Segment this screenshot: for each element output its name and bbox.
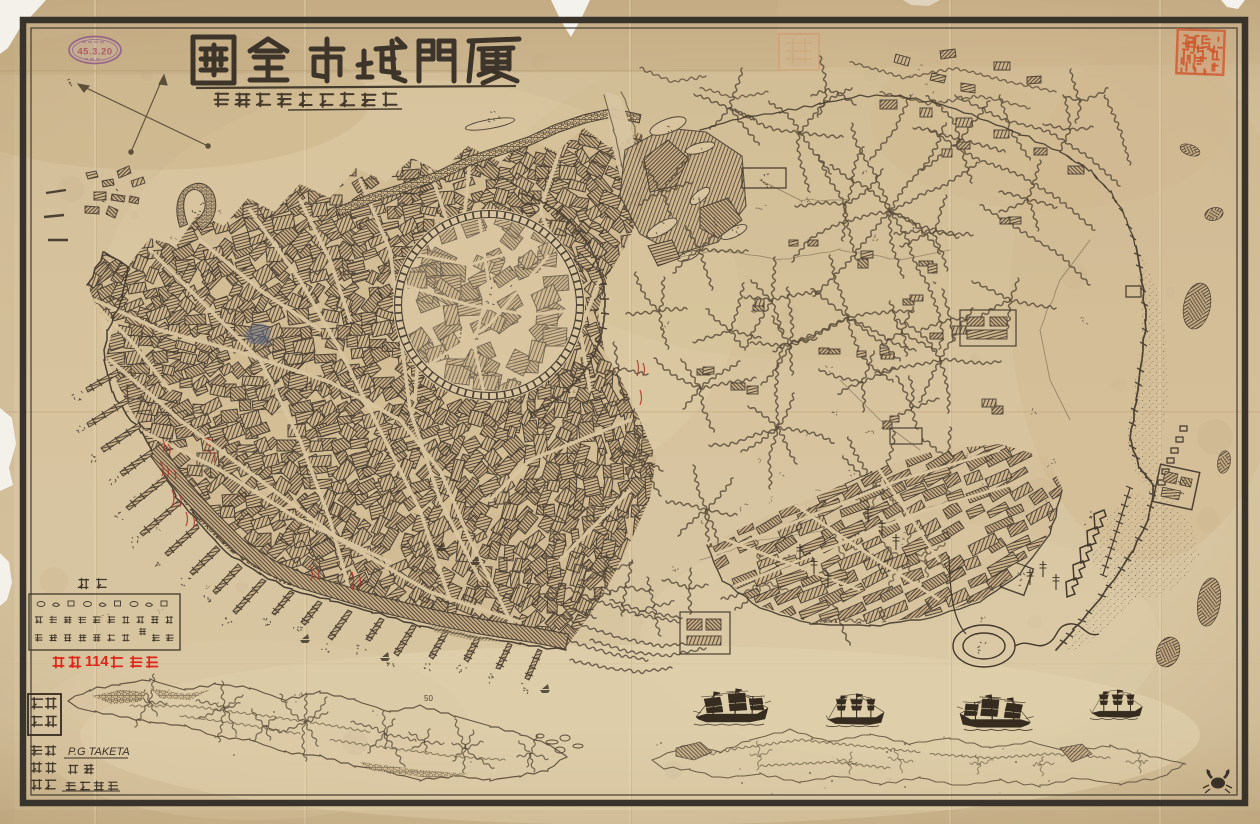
svg-text:P.G TAKETA: P.G TAKETA <box>68 746 130 758</box>
svg-text:50: 50 <box>424 694 433 703</box>
svg-text:114: 114 <box>85 654 108 670</box>
svg-text:45.3.20: 45.3.20 <box>77 47 112 58</box>
